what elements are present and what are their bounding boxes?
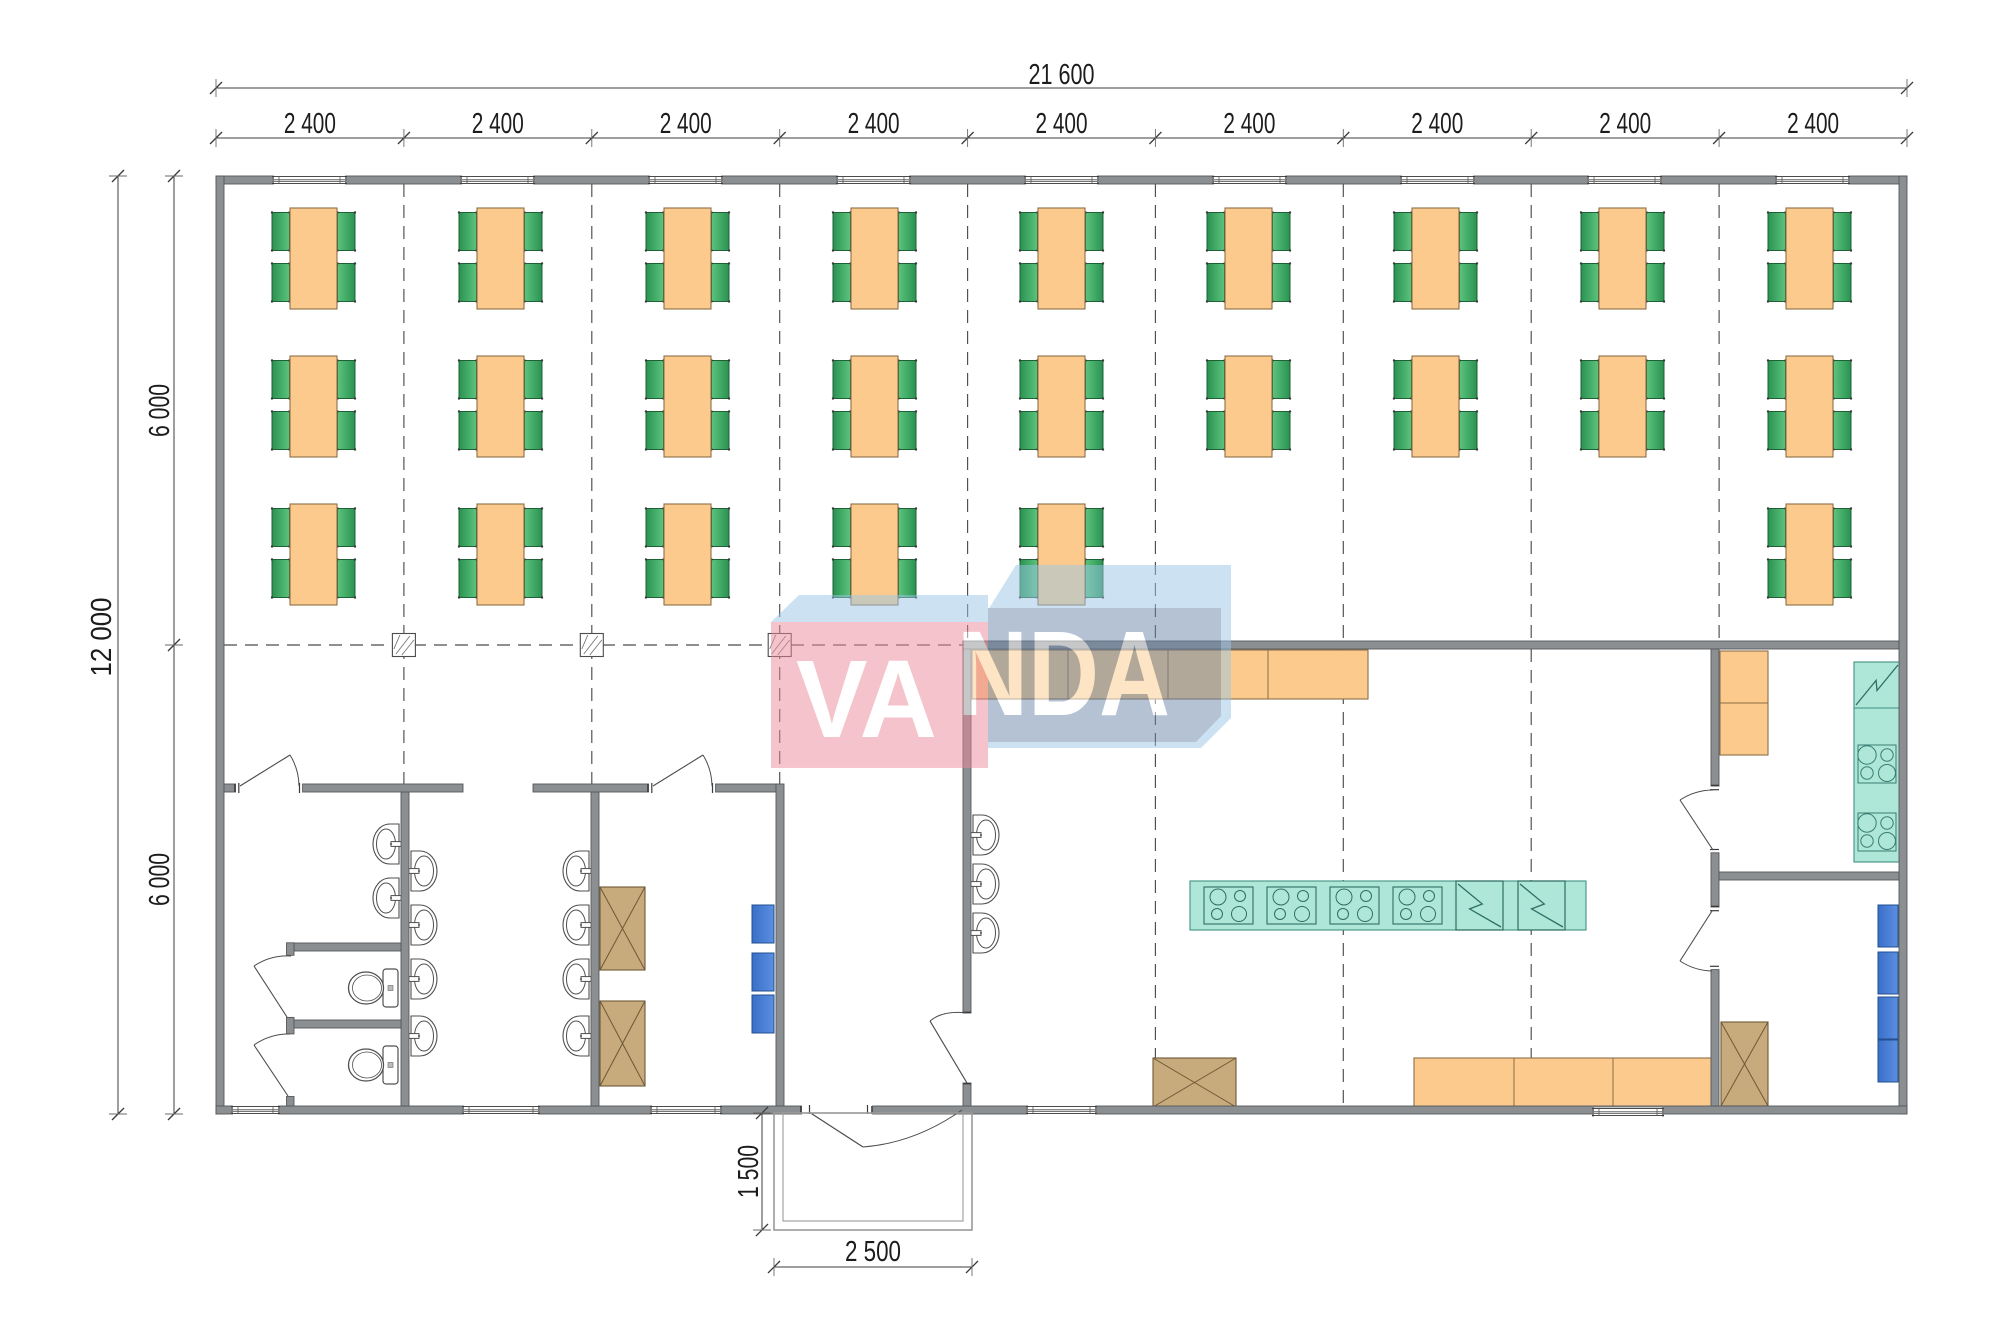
svg-text:2 400: 2 400 <box>660 108 712 140</box>
svg-text:2 500: 2 500 <box>845 1236 901 1268</box>
svg-text:2 400: 2 400 <box>1223 108 1275 140</box>
svg-text:21 600: 21 600 <box>1029 59 1095 91</box>
svg-text:2 400: 2 400 <box>1036 108 1088 140</box>
svg-text:NDA: NDA <box>957 605 1170 741</box>
svg-text:2 400: 2 400 <box>848 108 900 140</box>
svg-text:2 400: 2 400 <box>1787 108 1839 140</box>
svg-text:6 000: 6 000 <box>144 853 176 906</box>
svg-text:12 000: 12 000 <box>86 598 118 677</box>
svg-text:2 400: 2 400 <box>1599 108 1651 140</box>
svg-text:2 400: 2 400 <box>472 108 524 140</box>
svg-text:1 500: 1 500 <box>733 1145 765 1198</box>
svg-text:2 400: 2 400 <box>1411 108 1463 140</box>
svg-text:6 000: 6 000 <box>144 384 176 437</box>
svg-text:VA: VA <box>796 638 937 761</box>
svg-text:2 400: 2 400 <box>284 108 336 140</box>
